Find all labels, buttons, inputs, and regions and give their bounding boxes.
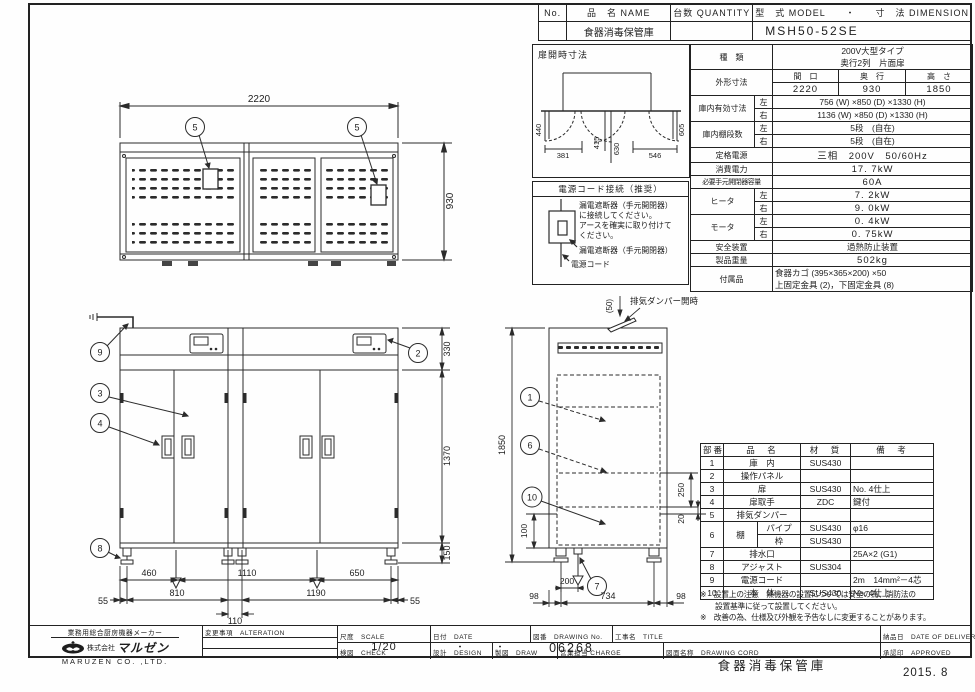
front-view: 9 2 3 4 8 330 1370 150 460 1110 650 55 8… — [40, 298, 500, 625]
drawing-sheet: No. 品 名 NAME 台数 QUANTITY 型 式 MODEL ・ 寸 法… — [0, 0, 975, 692]
spec-inner-right: 1136 (W) ×850 (D) ×1330 (H) — [773, 109, 973, 122]
dim-415: 415 — [592, 137, 601, 150]
svg-text:1110: 1110 — [238, 568, 257, 578]
spec-table: 種 類 200V大型タイプ 奥行2列 片面扉 外形寸法 間 口 奥 行 高 さ … — [690, 44, 973, 292]
spec-breaker: 60A — [773, 176, 973, 189]
scale-cell: 尺度 SCALE 1/20 — [337, 626, 430, 642]
front-dimension-lines — [110, 328, 450, 618]
spec-weight-label: 製品重量 — [691, 254, 773, 267]
door-open-dimension-box: 扉開時寸法 440 381 415 630 546 605 — [532, 44, 690, 178]
svg-text:810: 810 — [169, 588, 184, 598]
svg-text:1: 1 — [527, 393, 532, 403]
plan-dim-depth: 930 — [445, 192, 456, 209]
spec-accessory: 食器カゴ (395×365×200) ×50 上固定金具 (2)，下固定金具 (… — [773, 267, 973, 292]
dim-605: 605 — [677, 124, 686, 137]
svg-text:10: 10 — [527, 493, 537, 503]
parts-row: 5排気ダンパー — [701, 509, 934, 522]
plan-louver-slots — [132, 166, 389, 245]
door-hinges — [121, 348, 398, 518]
svg-text:5: 5 — [192, 123, 197, 133]
spec-safety-label: 安全装置 — [691, 241, 773, 254]
charge-cell: 営業担当 CHARGE — [557, 642, 663, 659]
svg-text:7: 7 — [594, 582, 599, 592]
front-balloons — [91, 324, 428, 559]
front-dimension-text: 9 2 3 4 8 330 1370 150 460 1110 650 55 8… — [97, 341, 452, 625]
side-leg — [556, 548, 566, 556]
parts-row: 8アジャストSUS304 — [701, 561, 934, 574]
power-cord-title: 電源コード接続（推奨） — [533, 182, 688, 197]
svg-text:110: 110 — [228, 616, 242, 625]
power-cord — [97, 317, 133, 328]
spec-motor-label: モータ — [691, 215, 755, 241]
product-name: 食器消毒保管庫 — [567, 22, 671, 41]
plan-feet-marks — [162, 261, 396, 266]
design-cell: 設計 DESIGN — [430, 642, 492, 659]
dim-630: 630 — [612, 143, 621, 156]
power-cord-diagram: 漏電遮断器（手元開閉器） に接続してください。 アースを確実に取り付けて くださ… — [533, 197, 688, 285]
door-open-title: 扉開時寸法 — [538, 49, 588, 60]
svg-text:460: 460 — [141, 568, 156, 578]
date-cell: 日付 DATE ・ ・ — [430, 626, 530, 642]
spec-inner-label: 庫内有効寸法 — [691, 96, 755, 122]
parts-row: 2操作パネル — [701, 470, 934, 483]
side-leg — [649, 548, 659, 556]
plan-dim-width: 2220 — [248, 94, 271, 105]
alteration-label: 変更事項 ALTERATION — [203, 626, 337, 637]
parts-row: 9電源コード2m 14mm²－4芯 — [701, 574, 934, 587]
parts-row: 3扉SUS430No. 4仕上 — [701, 483, 934, 496]
svg-text:9: 9 — [97, 348, 102, 358]
header-table: No. 品 名 NAME 台数 QUANTITY 型 式 MODEL ・ 寸 法… — [538, 3, 972, 41]
spec-breaker-label: 必要手元開閉器容量 — [691, 176, 773, 189]
svg-text:250: 250 — [676, 483, 686, 497]
quantity-value — [671, 22, 753, 41]
plan-view: 2220 930 5 5 — [40, 70, 490, 298]
parts-row: 1庫 内SUS430 — [701, 457, 934, 470]
svg-text:650: 650 — [349, 568, 364, 578]
spec-inner-left: 756 (W) ×850 (D) ×1330 (H) — [773, 96, 973, 109]
delivery-date-cell: 納品日 DATE OF DELIVERY — [880, 626, 972, 642]
side-dimension-text: 1 6 10 7 (50) 排気ダンパー開時 1850 100 250 20 2… — [497, 296, 699, 601]
damper-flap-open — [608, 318, 636, 332]
svg-text:6: 6 — [527, 441, 532, 451]
cord-note-line3: アースを確実に取り付けて — [579, 220, 672, 230]
svg-text:5: 5 — [354, 123, 359, 133]
dim-440: 440 — [534, 124, 543, 137]
svg-text:1190: 1190 — [306, 588, 325, 598]
spec-outer-label: 外形寸法 — [691, 70, 773, 96]
door-open-diagram: 扉開時寸法 440 381 415 630 546 605 — [533, 45, 689, 177]
spec-height: 1850 — [906, 83, 973, 96]
cord-label: 電源コード — [571, 260, 610, 269]
spec-kind-value: 200V大型タイプ 奥行2列 片面扉 — [773, 45, 973, 70]
power-cord-box: 電源コード接続（推奨） 漏電遮断器（手元開閉器） に接続してください。 アースを… — [532, 181, 689, 285]
dim-381: 381 — [557, 151, 570, 160]
drawing-name: 食器消毒保管庫 — [664, 655, 880, 674]
cord-note-line2: に接続してください。 — [579, 210, 657, 220]
installation-notes: ※ 設置上の注意 熱機器の設置については安全の為、消防法の 設置基準に従って設置… — [700, 589, 962, 624]
svg-text:20: 20 — [676, 514, 686, 524]
cord-note-line4: ください。 — [579, 231, 618, 240]
spec-shelf-label: 庫内棚段数 — [691, 122, 755, 148]
title-block: 業務用総合厨房機器メーカー 株式会社 マルゼン MARUZEN CO. ,LTD… — [28, 625, 972, 658]
legs-and-feet — [121, 548, 397, 564]
svg-text:(50): (50) — [605, 299, 614, 314]
spec-width: 2220 — [773, 83, 839, 96]
header-col-model: 型 式 MODEL ・ 寸 法 DIMENSION — [753, 4, 972, 22]
company-logo-block: 業務用総合厨房機器メーカー 株式会社 マルゼン MARUZEN CO. ,LTD… — [28, 626, 202, 658]
spec-consumption-label: 消費電力 — [691, 163, 773, 176]
svg-text:55: 55 — [410, 596, 420, 606]
parts-row: 6 棚 パイプ SUS430 φ16 — [701, 522, 934, 535]
maruzen-logo-icon — [61, 641, 85, 654]
svg-text:200: 200 — [560, 576, 574, 586]
cord-note-line1: 漏電遮断器（手元開閉器） — [579, 200, 673, 210]
svg-text:100: 100 — [519, 524, 529, 538]
alteration-box: 変更事項 ALTERATION — [202, 626, 337, 658]
side-balloons — [521, 388, 607, 596]
svg-text:98: 98 — [676, 591, 686, 601]
draw-cell: 製図 DRAW — [492, 642, 557, 659]
header-col-name: 品 名 NAME — [567, 4, 671, 22]
spec-depth: 930 — [839, 83, 906, 96]
svg-text:1850: 1850 — [497, 435, 507, 455]
spec-power: 三相 200V 50/60Hz — [773, 148, 973, 163]
svg-text:150: 150 — [442, 545, 452, 560]
spec-consumption: 17. 7kW — [773, 163, 973, 176]
damper-open-label: 排気ダンパー開時 — [630, 296, 699, 306]
svg-text:2: 2 — [415, 349, 420, 359]
svg-text:1370: 1370 — [442, 446, 452, 466]
svg-text:4: 4 — [97, 419, 102, 429]
breaker-label: 漏電遮断器（手元開閉器） — [579, 245, 673, 255]
svg-text:330: 330 — [442, 341, 452, 356]
spec-power-label: 定格電源 — [691, 148, 773, 163]
side-view: 1 6 10 7 (50) 排気ダンパー開時 1850 100 250 20 2… — [470, 288, 720, 625]
spec-kind-label: 種 類 — [691, 45, 773, 70]
issue-date: 2015. 8 — [903, 667, 948, 679]
header-col-no: No. — [539, 4, 567, 22]
approved-cell: 承認印 APPROVED — [880, 642, 972, 659]
parts-row: 4扉取手ZDC鍵付 — [701, 496, 934, 509]
exhaust-damper-left — [203, 169, 218, 189]
drawing-no-cell: 図番 DRAWING No. 06268 — [530, 626, 612, 642]
svg-text:3: 3 — [97, 389, 102, 399]
project-title-cell: 工事名 TITLE — [612, 626, 880, 642]
model-number: MSH50-52SE — [753, 22, 972, 41]
check-cell: 検図 CHECK — [337, 642, 430, 659]
company-name-en: MARUZEN CO. ,LTD. — [28, 657, 202, 666]
drawing-name-cell: 図面名称 DRAWING CORD 食器消毒保管庫 — [663, 642, 880, 659]
company-prefix: 株式会社 — [87, 643, 115, 653]
parts-row: 7排水口25A×2 (G1) — [701, 548, 934, 561]
svg-text:55: 55 — [98, 596, 108, 606]
company-name: マルゼン — [117, 639, 169, 656]
svg-text:8: 8 — [97, 544, 102, 554]
header-no-value — [539, 22, 567, 41]
dim-546: 546 — [649, 151, 662, 160]
spec-heater-label: ヒータ — [691, 189, 755, 215]
exhaust-damper-right — [371, 185, 386, 205]
parts-table: 部番 品 名 材 質 備 考 1庫 内SUS430 2操作パネル 3扉SUS43… — [700, 443, 934, 600]
header-col-qty: 台数 QUANTITY — [671, 4, 753, 22]
company-tagline: 業務用総合厨房機器メーカー — [51, 627, 179, 638]
drain-outlet — [574, 548, 582, 554]
svg-text:98: 98 — [529, 591, 539, 601]
svg-text:734: 734 — [600, 591, 615, 601]
